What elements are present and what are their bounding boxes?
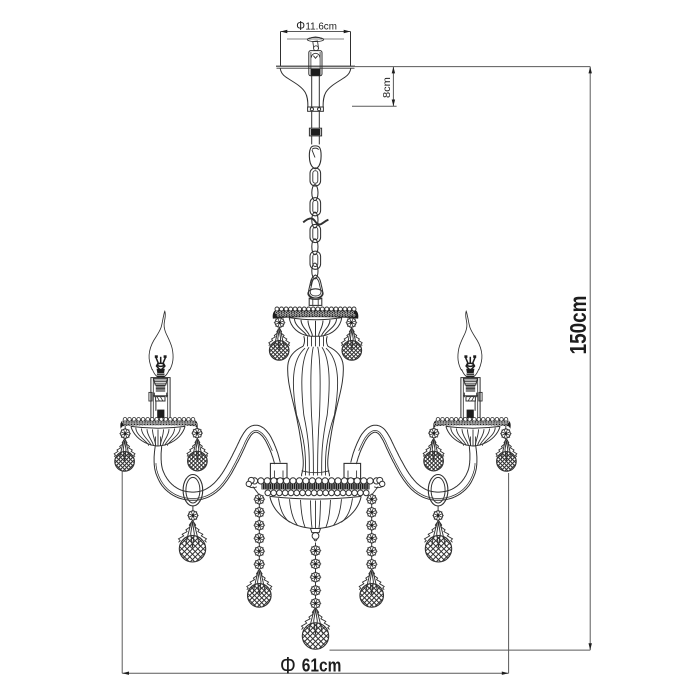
svg-text:150cm: 150cm: [565, 296, 591, 355]
svg-text:Φ: Φ: [296, 18, 305, 33]
svg-text:61cm: 61cm: [302, 655, 342, 675]
svg-text:11.6cm: 11.6cm: [305, 21, 337, 33]
svg-text:8cm: 8cm: [381, 77, 393, 98]
svg-text:Φ: Φ: [280, 653, 296, 680]
